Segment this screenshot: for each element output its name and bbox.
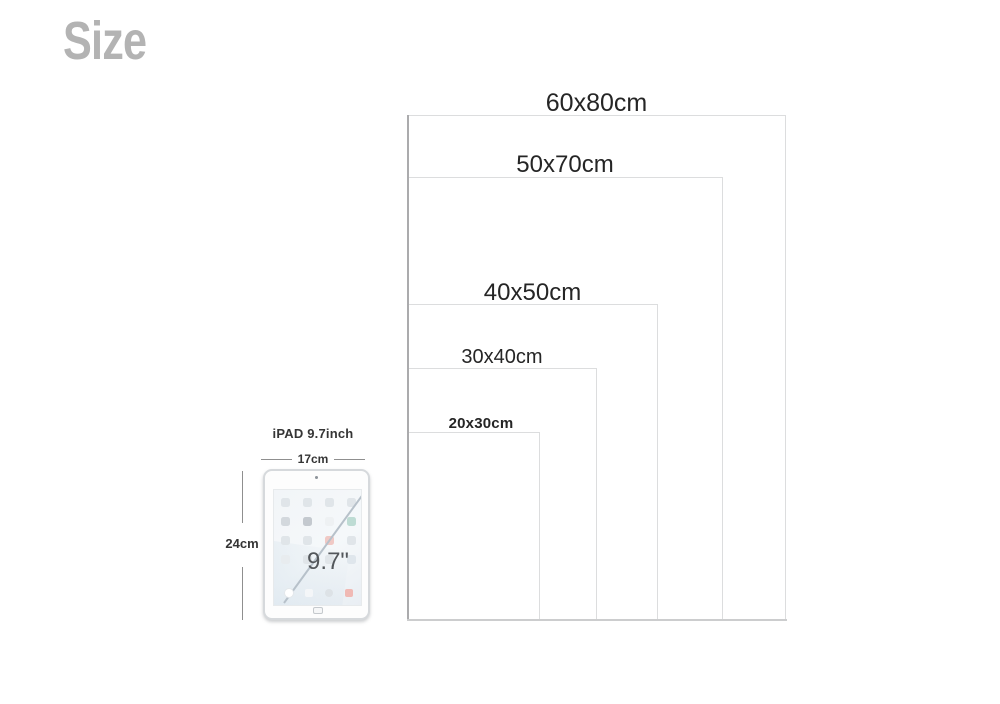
dock-icon (305, 589, 313, 597)
app-icon (325, 498, 334, 507)
dimension-dash-right (334, 459, 365, 460)
page-title: Size (63, 10, 146, 72)
ipad-width-label: 17cm (292, 452, 335, 466)
app-icon (281, 498, 290, 507)
dock-icon (285, 589, 293, 597)
size-label-40x50: 40x50cm (407, 279, 658, 307)
ipad-width-dimension: 17cm (261, 451, 365, 467)
size-label-30x40: 30x40cm (407, 346, 597, 369)
dimension-line-top (242, 471, 243, 523)
size-label-60x80: 60x80cm (407, 89, 786, 118)
dimension-dash-left (261, 459, 292, 460)
dock-icon (345, 589, 353, 597)
app-icon (303, 498, 312, 507)
app-icon (281, 517, 290, 526)
ipad-body: 9.7" (263, 469, 370, 620)
ipad-name-label: iPAD 9.7inch (248, 426, 378, 441)
app-icon (303, 517, 312, 526)
size-comparison-diagram: Size 60x80cm 50x70cm 40x50cm 30x40cm 20x… (0, 0, 1000, 704)
ipad-screen: 9.7" (273, 489, 362, 606)
dock-icon-row (285, 589, 353, 597)
camera-dot-icon (315, 476, 318, 479)
home-button-icon (313, 607, 323, 614)
app-icon (347, 517, 356, 526)
dimension-line-bottom (242, 567, 243, 620)
app-icon (281, 536, 290, 545)
app-icon (303, 536, 312, 545)
ipad-height-label: 24cm (221, 536, 263, 551)
size-label-20x30: 20x30cm (407, 415, 555, 432)
shared-bottom-edge (407, 619, 787, 621)
size-rect-20x30 (407, 432, 540, 620)
ipad-diagonal-label: 9.7" (300, 548, 356, 576)
app-icon (325, 517, 334, 526)
dock-icon (325, 589, 333, 597)
app-icon (281, 555, 290, 564)
size-label-50x70: 50x70cm (407, 151, 723, 179)
app-icon (347, 536, 356, 545)
